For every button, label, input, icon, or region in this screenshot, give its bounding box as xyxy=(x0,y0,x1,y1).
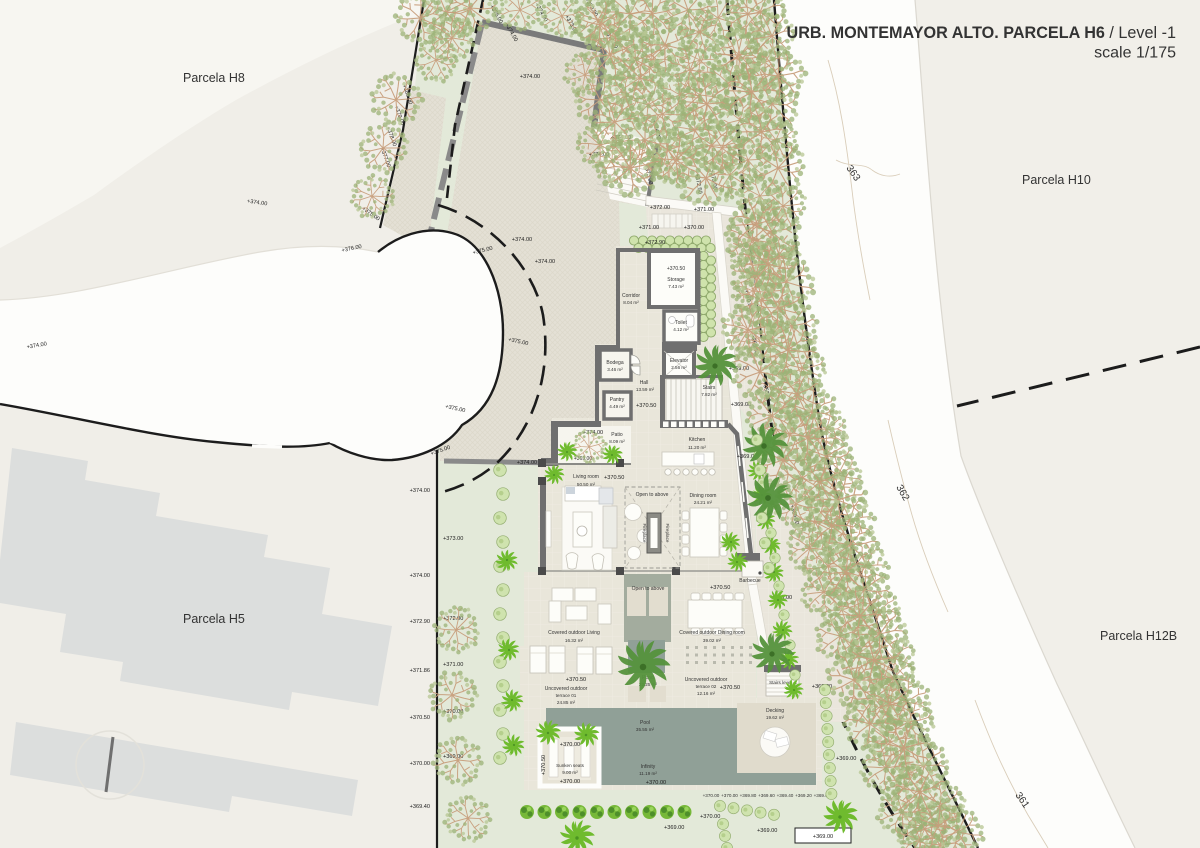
svg-text:Elevator: Elevator xyxy=(670,358,689,364)
svg-text:2.56 m²: 2.56 m² xyxy=(671,365,687,370)
svg-text:+370.00: +370.00 xyxy=(410,761,430,767)
svg-text:terrace 01: terrace 01 xyxy=(556,693,577,698)
svg-text:Kitchen: Kitchen xyxy=(689,437,706,443)
svg-text:+370.50: +370.50 xyxy=(720,685,740,691)
svg-text:Parcela H12B: Parcela H12B xyxy=(1100,629,1177,643)
svg-text:Stairs: Stairs xyxy=(703,385,716,391)
svg-text:Decking: Decking xyxy=(766,708,784,714)
svg-text:Pantry: Pantry xyxy=(610,397,625,403)
svg-text:+371.00: +371.00 xyxy=(443,662,463,668)
svg-text:+370.00: +370.00 xyxy=(721,793,738,798)
svg-text:+374.00: +374.00 xyxy=(410,488,430,494)
svg-text:terrace 02: terrace 02 xyxy=(696,684,717,689)
svg-text:Covered outdoor Living: Covered outdoor Living xyxy=(548,630,600,636)
svg-text:11.20 m²: 11.20 m² xyxy=(688,445,706,450)
svg-text:19.62 m²: 19.62 m² xyxy=(766,715,785,720)
svg-text:50.50 m²: 50.50 m² xyxy=(577,482,596,487)
svg-text:URB. MONTEMAYOR ALTO. PARCELA: URB. MONTEMAYOR ALTO. PARCELA H6 / Level… xyxy=(787,24,1176,42)
svg-text:Corridor: Corridor xyxy=(622,293,640,299)
svg-text:Uncovered outdoor: Uncovered outdoor xyxy=(545,686,588,692)
svg-text:+370.50: +370.50 xyxy=(604,475,624,481)
svg-text:+369.60: +369.60 xyxy=(758,793,775,798)
svg-text:3.46 m²: 3.46 m² xyxy=(607,367,623,372)
svg-text:+373.00: +373.00 xyxy=(443,536,463,542)
svg-text:12.16 m²: 12.16 m² xyxy=(697,691,716,696)
svg-text:9.00 m²: 9.00 m² xyxy=(562,770,578,775)
svg-text:+370.50: +370.50 xyxy=(566,677,586,683)
svg-text:+369.00: +369.00 xyxy=(836,756,856,762)
svg-text:Fireplace: Fireplace xyxy=(642,524,647,543)
svg-text:+370.00: +370.00 xyxy=(560,779,580,785)
svg-text:4.49 m²: 4.49 m² xyxy=(609,404,625,409)
svg-text:7.82 m²: 7.82 m² xyxy=(701,392,717,397)
svg-text:+369.80: +369.80 xyxy=(740,793,757,798)
svg-text:24.21 m²: 24.21 m² xyxy=(694,500,713,505)
svg-text:+371.86: +371.86 xyxy=(410,668,430,674)
svg-text:Fireplace: Fireplace xyxy=(665,524,670,543)
svg-text:+374.00: +374.00 xyxy=(535,259,555,265)
svg-text:Bodega: Bodega xyxy=(606,360,623,366)
svg-text:+370.00: +370.00 xyxy=(560,742,580,748)
svg-text:24.85 m²: 24.85 m² xyxy=(557,700,576,705)
svg-text:Sunken seats: Sunken seats xyxy=(556,763,585,768)
svg-text:Barbecue: Barbecue xyxy=(739,578,761,584)
svg-text:+370.00: +370.00 xyxy=(684,225,704,231)
svg-text:+369.20: +369.20 xyxy=(795,793,812,798)
svg-text:Living room: Living room xyxy=(573,474,599,480)
svg-text:11.19 m²: 11.19 m² xyxy=(639,771,657,776)
svg-text:+374.00: +374.00 xyxy=(520,74,540,80)
svg-text:+372.90: +372.90 xyxy=(410,619,430,625)
svg-text:8.09 m²: 8.09 m² xyxy=(609,439,625,444)
svg-text:+370.50: +370.50 xyxy=(710,585,730,591)
svg-text:+370.00: +370.00 xyxy=(703,793,720,798)
svg-text:+372.00: +372.00 xyxy=(443,616,463,622)
svg-text:+369.00: +369.00 xyxy=(757,828,777,834)
svg-text:Covered outdoor Dining room: Covered outdoor Dining room xyxy=(679,630,745,636)
svg-text:+370.00: +370.00 xyxy=(646,780,666,786)
svg-text:Open to above: Open to above xyxy=(636,492,669,498)
svg-text:Dining room: Dining room xyxy=(690,493,717,499)
svg-text:Toilet: Toilet xyxy=(675,320,687,326)
svg-text:Storage: Storage xyxy=(667,277,685,283)
svg-text:+369.00: +369.00 xyxy=(443,754,463,760)
svg-text:+371.00: +371.00 xyxy=(694,207,714,213)
svg-text:Parcela H5: Parcela H5 xyxy=(183,612,245,626)
svg-text:Parcela H10: Parcela H10 xyxy=(1022,173,1091,187)
svg-text:+370.00: +370.00 xyxy=(700,814,720,820)
svg-text:Infinity: Infinity xyxy=(641,764,656,770)
svg-text:39.02 m²: 39.02 m² xyxy=(703,638,722,643)
svg-text:35.55 m²: 35.55 m² xyxy=(636,727,655,732)
svg-text:Parcela H8: Parcela H8 xyxy=(183,71,245,85)
svg-text:+372.90: +372.90 xyxy=(645,240,665,246)
svg-text:Patio: Patio xyxy=(611,432,623,438)
svg-text:Hall: Hall xyxy=(640,380,649,386)
svg-text:4.12 m²: 4.12 m² xyxy=(673,327,689,332)
svg-text:scale 1/175: scale 1/175 xyxy=(1094,45,1176,62)
svg-text:+369.00: +369.00 xyxy=(664,825,684,831)
svg-text:+374.00: +374.00 xyxy=(410,573,430,579)
svg-text:Uncovered outdoor: Uncovered outdoor xyxy=(685,677,728,683)
svg-text:+369.40: +369.40 xyxy=(777,793,794,798)
svg-text:8.04 m²: 8.04 m² xyxy=(623,300,639,305)
svg-text:13.59 m²: 13.59 m² xyxy=(636,387,655,392)
svg-text:+370.50: +370.50 xyxy=(541,755,547,775)
svg-text:+370.50: +370.50 xyxy=(636,403,656,409)
svg-text:+371.00: +371.00 xyxy=(639,225,659,231)
svg-text:16.32 m²: 16.32 m² xyxy=(565,638,584,643)
svg-text:+374.00: +374.00 xyxy=(512,237,532,243)
svg-text:Pool: Pool xyxy=(640,720,650,726)
svg-text:+370.50: +370.50 xyxy=(410,715,430,721)
svg-text:+369.00: +369.00 xyxy=(813,834,833,840)
svg-text:Open to above: Open to above xyxy=(632,586,665,592)
svg-text:+372.00: +372.00 xyxy=(650,205,670,211)
svg-text:+370.50: +370.50 xyxy=(667,266,685,272)
svg-text:7.43 m²: 7.43 m² xyxy=(668,284,684,289)
svg-text:+369.40: +369.40 xyxy=(410,804,430,810)
svg-text:+374.00: +374.00 xyxy=(517,460,537,466)
